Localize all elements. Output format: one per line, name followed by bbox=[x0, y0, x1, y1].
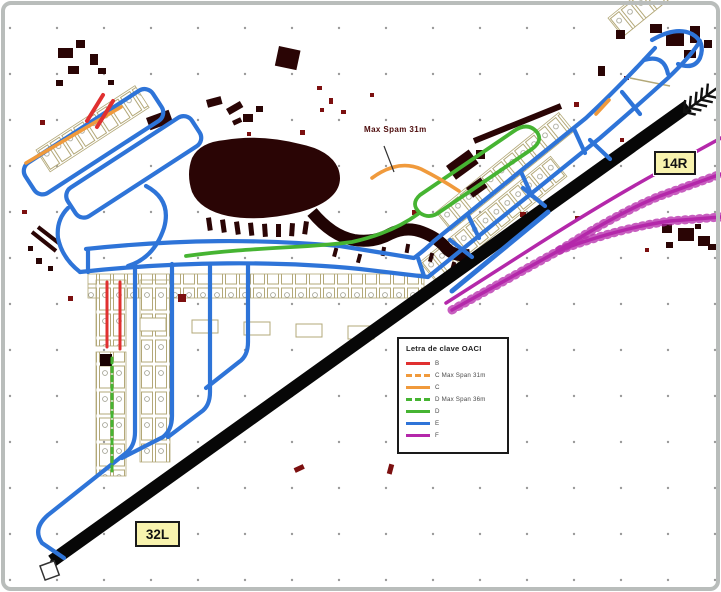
legend-swatch-c-restricted bbox=[406, 374, 430, 377]
legend-row-b: B bbox=[406, 357, 500, 369]
runway-label-14R: 14R bbox=[654, 151, 696, 175]
legend-swatch-d bbox=[406, 410, 430, 413]
legend-label-c-restricted: C Max Span 31m bbox=[435, 372, 486, 379]
max-span-annotation: Max Spam 31m bbox=[364, 125, 427, 134]
legend-label-c: C bbox=[435, 384, 440, 391]
legend-label-b: B bbox=[435, 360, 439, 367]
legend-title: Letra de clave OACI bbox=[406, 344, 500, 353]
legend-row-d-restricted: D Max Span 36m bbox=[406, 393, 500, 405]
legend-swatch-c bbox=[406, 386, 430, 389]
legend-swatch-d-restricted bbox=[406, 398, 430, 401]
legend-label-d-restricted: D Max Span 36m bbox=[435, 396, 486, 403]
legend-row-e: E bbox=[406, 417, 500, 429]
legend-label-e: E bbox=[435, 420, 439, 427]
legend-row-d: D bbox=[406, 405, 500, 417]
legend-swatch-e bbox=[406, 422, 430, 425]
runway-label-14R-text: 14R bbox=[663, 156, 688, 171]
legend-row-c-restricted: C Max Span 31m bbox=[406, 369, 500, 381]
airport-map-canvas bbox=[0, 0, 721, 592]
legend-box: Letra de clave OACI B C Max Span 31m C D… bbox=[397, 337, 509, 454]
legend-row-c: C bbox=[406, 381, 500, 393]
legend-row-f: F bbox=[406, 429, 500, 441]
legend-label-d: D bbox=[435, 408, 440, 415]
legend-swatch-f bbox=[406, 434, 430, 437]
legend-label-f: F bbox=[435, 432, 439, 439]
runway-label-32L-text: 32L bbox=[146, 527, 169, 542]
legend-swatch-b bbox=[406, 362, 430, 365]
airport-chart-page: Max Spam 31m 14R 32L Letra de clave OACI… bbox=[0, 0, 721, 592]
runway-label-32L: 32L bbox=[135, 521, 180, 547]
